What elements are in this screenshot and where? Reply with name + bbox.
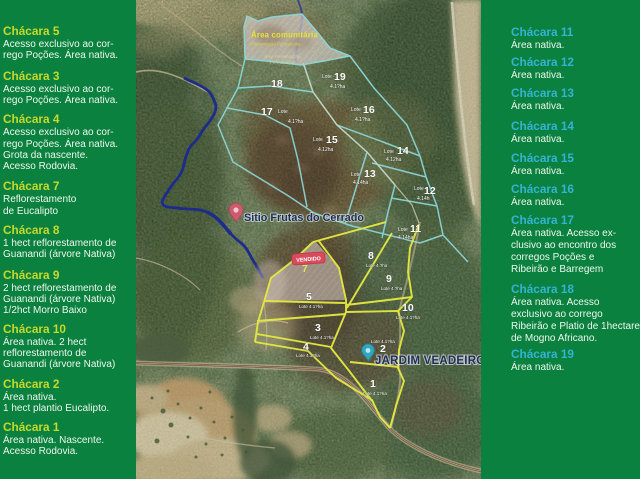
- svg-text:Lote 4.1?ha: Lote 4.1?ha: [396, 315, 420, 320]
- svg-text:2: 2: [380, 343, 386, 355]
- svg-text:Lote: Lote: [351, 172, 361, 178]
- svg-text:Lote 4.?ha: Lote 4.?ha: [381, 286, 403, 291]
- svg-text:4.14h: 4.14h: [417, 196, 430, 202]
- svg-text:4.1?ha: 4.1?ha: [330, 84, 346, 90]
- svg-text:11: 11: [410, 223, 421, 235]
- svg-text:Lote 4.1?ha: Lote 4.1?ha: [371, 339, 395, 344]
- svg-text:4.1?ha: 4.1?ha: [288, 119, 304, 125]
- svg-text:8: 8: [368, 250, 374, 262]
- svg-text:19: 19: [334, 71, 346, 83]
- svg-text:JARDIM VEADEIRO: JARDIM VEADEIRO: [375, 355, 481, 367]
- svg-text:Lote: Lote: [351, 107, 361, 113]
- svg-text:Lote 4.1?ha: Lote 4.1?ha: [296, 353, 320, 358]
- svg-text:1: 1: [370, 378, 376, 390]
- svg-text:4.14ha: 4.14ha: [398, 235, 414, 241]
- svg-text:Lote 4.1?ha: Lote 4.1?ha: [299, 304, 323, 309]
- svg-text:Lote: Lote: [313, 137, 323, 143]
- svg-text:13: 13: [364, 168, 376, 180]
- svg-text:4.1?ha: 4.1?ha: [355, 117, 371, 123]
- svg-text:Lote 4.1?ha: Lote 4.1?ha: [310, 335, 334, 340]
- svg-text:10: 10: [402, 302, 414, 314]
- svg-text:9: 9: [386, 273, 392, 285]
- svg-text:15: 15: [326, 134, 338, 146]
- svg-text:4.12ha: 4.12ha: [318, 147, 334, 153]
- svg-text:Lote 4.1?ha: Lote 4.1?ha: [363, 391, 387, 396]
- svg-text:14: 14: [397, 145, 409, 157]
- svg-text:Lote: Lote: [414, 186, 424, 192]
- svg-text:18: 18: [271, 78, 283, 90]
- svg-text:Permanente: Permanente: [270, 60, 295, 65]
- svg-text:Lote 4.?ha: Lote 4.?ha: [366, 263, 388, 268]
- svg-text:Preservaçao Permanente: Preservaçao Permanente: [251, 42, 301, 47]
- svg-text:Lote: Lote: [278, 109, 288, 115]
- svg-text:3: 3: [315, 322, 321, 334]
- svg-text:Área Preservação: Área Preservação: [264, 53, 301, 59]
- svg-text:4: 4: [303, 341, 309, 353]
- svg-text:4.12ha: 4.12ha: [386, 157, 402, 163]
- svg-text:Lote: Lote: [384, 149, 394, 155]
- svg-text:16: 16: [363, 104, 375, 116]
- svg-text:Área comunitária: Área comunitária: [251, 31, 318, 40]
- svg-text:5: 5: [306, 291, 312, 303]
- svg-text:7: 7: [302, 263, 308, 275]
- svg-text:Sitio Frutas do Cerrado: Sitio Frutas do Cerrado: [244, 212, 364, 224]
- svg-text:Lote: Lote: [398, 227, 408, 233]
- svg-text:17: 17: [261, 106, 273, 118]
- svg-text:4.14ha: 4.14ha: [353, 180, 369, 186]
